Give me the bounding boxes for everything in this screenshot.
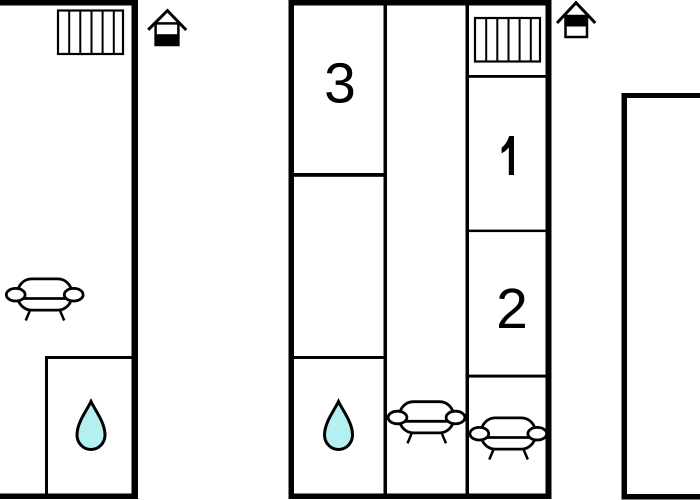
svg-text:2: 2 <box>496 277 528 341</box>
svg-text:3: 3 <box>324 52 356 116</box>
